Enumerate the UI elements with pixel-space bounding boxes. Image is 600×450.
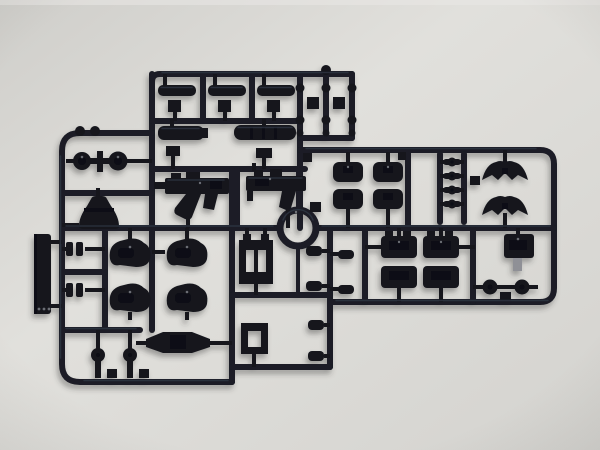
photo-frame [0,0,600,450]
sprue-photo [0,0,600,450]
photo-vignette [0,0,600,450]
